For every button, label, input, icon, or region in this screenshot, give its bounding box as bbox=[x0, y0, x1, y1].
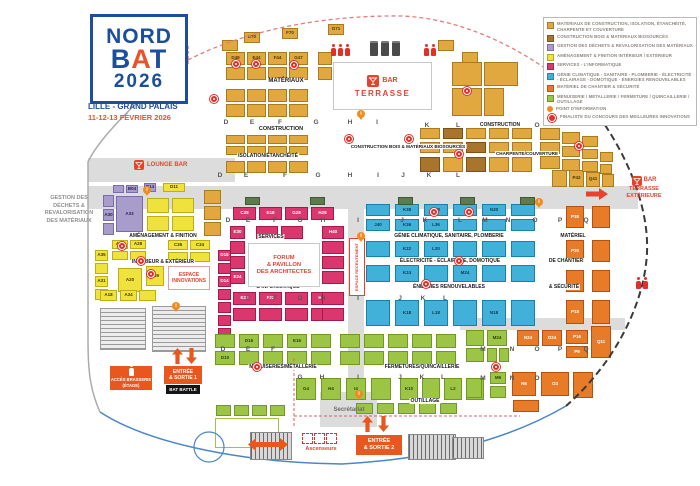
legend-item-label: SERVICES - L'INFORMATIQUE bbox=[557, 62, 621, 68]
booth bbox=[487, 348, 497, 362]
lounge-bar-label: LOUNGE BAR bbox=[134, 160, 187, 170]
booth bbox=[322, 256, 344, 269]
aisle-letter-I: I bbox=[357, 295, 359, 302]
booth bbox=[95, 263, 108, 274]
booth bbox=[420, 157, 440, 172]
aisle-letter-M: M bbox=[480, 346, 485, 353]
arrow-up-icon bbox=[172, 348, 183, 364]
aisle-letter-E: E bbox=[246, 295, 250, 302]
booth bbox=[287, 351, 307, 365]
espace-recrutement: ESPACE RECRUTEMENT bbox=[349, 238, 365, 296]
booth bbox=[466, 330, 484, 346]
info-point-icon: i bbox=[172, 302, 180, 310]
booth-K10: K10 bbox=[400, 378, 418, 400]
booth bbox=[366, 265, 390, 282]
aisle-letter-I: I bbox=[377, 172, 379, 179]
aisle-letter-J: J bbox=[400, 217, 404, 224]
zone-label: MATÉRIEL bbox=[559, 233, 586, 239]
zone-label: SERVICES bbox=[257, 234, 284, 240]
booth bbox=[582, 161, 598, 172]
legend-item: MATÉRIEL DE CHANTIER & SÉCURITÉ bbox=[547, 84, 693, 92]
innovation-finalist-icon bbox=[210, 95, 218, 103]
aisle-letter-F: F bbox=[273, 295, 277, 302]
info-point-icon: i bbox=[357, 232, 365, 240]
legend-item-label: POINT D'INFORMATION bbox=[556, 106, 606, 112]
floorplan-page: NORD BAT 2026 LILLE - GRAND PALAIS 11-12… bbox=[0, 0, 700, 486]
vending-machine-icon bbox=[370, 41, 378, 56]
zone-label: CONSTRUCTION BOIS & MATÉRIAUX BIOSOURCÉS bbox=[350, 144, 467, 149]
bench-icon bbox=[520, 197, 535, 205]
aisle-letter-K: K bbox=[420, 374, 425, 381]
booth-Q41: Q41 bbox=[586, 172, 600, 187]
entree-sortie-1: ENTRÉE & SORTIE 1 bbox=[164, 366, 202, 384]
zone-label: MATÉRIAUX bbox=[267, 78, 304, 84]
arrow-up-icon bbox=[362, 416, 373, 432]
legend-color-swatch bbox=[547, 85, 554, 92]
zone-label: GÉNIE CLIMATIQUE, SANITAIRE, PLOMBERIE bbox=[393, 233, 505, 239]
elevator-icon bbox=[314, 433, 325, 444]
booth-P38: P38 bbox=[566, 206, 584, 228]
booth bbox=[230, 256, 245, 269]
booth bbox=[364, 351, 384, 365]
booth bbox=[443, 128, 463, 139]
booth-K24: K24 bbox=[395, 265, 419, 282]
zone-label: AMÉNAGEMENT & FINITION bbox=[128, 233, 198, 239]
booth-C28: C28 bbox=[233, 207, 256, 220]
booth-E24: E24 bbox=[230, 271, 245, 284]
booth-K36: K36 bbox=[395, 219, 419, 231]
aisle-letter-K: K bbox=[421, 295, 426, 302]
booth bbox=[311, 334, 331, 348]
booth bbox=[511, 219, 535, 231]
booth-F70: F70 bbox=[282, 28, 298, 39]
booth-A18: A18 bbox=[100, 290, 117, 301]
aisle-letter-E: E bbox=[246, 346, 250, 353]
aisle-letter-F: F bbox=[271, 346, 275, 353]
innovation-finalist-icon bbox=[422, 280, 430, 288]
innovation-finalist-icon bbox=[548, 114, 556, 122]
innovation-finalist-icon bbox=[345, 135, 353, 143]
zone-label: & SÉCURITÉ bbox=[548, 284, 580, 290]
innovation-finalist-icon bbox=[575, 142, 583, 150]
booth-P16: P16 bbox=[566, 330, 588, 344]
innovation-finalist-icon bbox=[290, 61, 298, 69]
legend-item-label: MATÉRIEL DE CHANTIER & SÉCURITÉ bbox=[557, 84, 639, 90]
booth-O24: O24 bbox=[542, 330, 562, 346]
booth bbox=[511, 241, 535, 257]
legend-item: GÉNIE CLIMATIQUE - SANITAIRE - PLOMBERIE… bbox=[547, 72, 693, 83]
booth bbox=[247, 67, 266, 80]
booth bbox=[511, 300, 535, 326]
booth bbox=[340, 351, 360, 365]
person-icon bbox=[129, 368, 134, 376]
booth bbox=[482, 265, 506, 282]
aisle-letter-J: J bbox=[398, 374, 402, 381]
aisle-letter-I: I bbox=[357, 217, 359, 224]
bat-battle: BAT BATTLE bbox=[166, 385, 200, 394]
venue-text: LILLE - GRAND PALAIS bbox=[88, 102, 178, 111]
aisle-letter-F: F bbox=[278, 119, 282, 126]
bench-icon bbox=[460, 197, 475, 205]
booth-N30: N30 bbox=[482, 204, 506, 216]
innovation-finalist-icon bbox=[463, 87, 471, 95]
innovation-finalist-icon bbox=[137, 257, 145, 265]
aisle-letter-D: D bbox=[221, 346, 226, 353]
booth bbox=[289, 89, 308, 102]
legend-item-label: FINALISTE DU CONCOURS DES MEILLEURES INN… bbox=[560, 114, 690, 120]
booth-B04: B04 bbox=[126, 185, 138, 193]
elevator-icon bbox=[302, 433, 313, 444]
bench-icon bbox=[398, 197, 413, 205]
booth bbox=[289, 135, 308, 144]
booth bbox=[489, 157, 509, 172]
stairs bbox=[152, 306, 206, 352]
cocktail-icon bbox=[632, 176, 642, 186]
aisle-letter-O: O bbox=[534, 375, 539, 382]
aisle-letter-N: N bbox=[510, 346, 515, 353]
innovation-finalist-icon bbox=[253, 363, 261, 371]
booth-E18: E18 bbox=[259, 207, 282, 220]
arrow-down-icon bbox=[186, 348, 197, 364]
escalator bbox=[408, 434, 456, 460]
legend-item: AMÉNAGEMENT & FINITION INTÉRIEUR / EXTÉR… bbox=[547, 53, 693, 61]
legend-item: SERVICES - L'INFORMATIQUE bbox=[547, 62, 693, 70]
legend-color-swatch bbox=[547, 44, 554, 51]
booth bbox=[420, 128, 440, 139]
booth bbox=[252, 405, 267, 416]
booth bbox=[398, 403, 415, 414]
legend-color-swatch bbox=[547, 63, 554, 70]
secretariat-label: Secrétariat bbox=[320, 407, 378, 413]
booth-A28: A28 bbox=[130, 240, 146, 249]
logo-line2: BAT bbox=[111, 47, 168, 73]
booth bbox=[436, 351, 456, 365]
booth bbox=[204, 206, 221, 220]
booth bbox=[412, 334, 432, 348]
booth bbox=[422, 378, 440, 400]
aisle-letter-K: K bbox=[427, 172, 432, 179]
aisle-letter-G: G bbox=[313, 119, 318, 126]
zone-label: CONSTRUCTION bbox=[479, 122, 521, 128]
booth bbox=[234, 405, 249, 416]
booth-E16: E16 bbox=[287, 334, 307, 348]
zone-label: ISOLATION/ÉTANCHÉITÉ bbox=[237, 153, 299, 159]
booth bbox=[513, 400, 539, 412]
aisle-letter-E: E bbox=[244, 172, 248, 179]
aisle-letter-I: I bbox=[357, 374, 359, 381]
legend-item: MATÉRIAUX DE CONSTRUCTION, ISOLATION, ÉT… bbox=[547, 21, 693, 32]
aisle-letter-H: H bbox=[321, 217, 326, 224]
booth bbox=[366, 241, 390, 257]
booth bbox=[147, 216, 169, 231]
aisle-letter-F: F bbox=[273, 217, 277, 224]
booth-K38: K38 bbox=[395, 204, 419, 216]
booth bbox=[453, 300, 477, 326]
booth-Q11: Q11 bbox=[591, 326, 611, 358]
booth bbox=[340, 334, 360, 348]
zone-label: CHARPENTE/COUVERTURE bbox=[495, 151, 559, 156]
legend-item-label: GESTION DES DÉCHETS & REVALORISATION DES… bbox=[557, 43, 693, 49]
booth-A31: A31 bbox=[95, 276, 108, 287]
booth bbox=[573, 372, 593, 398]
booth bbox=[511, 204, 535, 216]
aisle-letter-L: L bbox=[458, 217, 462, 224]
booth-G4: G4 bbox=[296, 378, 316, 400]
restroom-person-icon bbox=[331, 48, 336, 56]
bench-icon bbox=[245, 197, 260, 205]
info-point-icon: i bbox=[357, 110, 365, 118]
innovation-finalist-icon bbox=[492, 363, 500, 371]
restroom-person-icon bbox=[431, 48, 436, 56]
gestion-dechets-label: GESTION DES DÉCHETS & REVALORISATION DES… bbox=[36, 195, 102, 226]
booth-A20: A20 bbox=[118, 268, 142, 292]
aisle-letter-H: H bbox=[320, 374, 325, 381]
legend-item-label: MENUISERIE / MÉTALLERIE / FERMETURE / QU… bbox=[557, 94, 693, 105]
legend-color-swatch bbox=[547, 35, 554, 42]
booth-A30: A30 bbox=[103, 209, 114, 221]
aisle-letter-M: M bbox=[482, 217, 487, 224]
escalator bbox=[452, 437, 484, 459]
booth bbox=[562, 159, 580, 171]
aisle-letter-L: L bbox=[456, 122, 460, 129]
ascenseurs-label: Ascenseurs bbox=[298, 446, 344, 452]
info-point-icon: i bbox=[535, 198, 543, 206]
aisle-letter-J: J bbox=[398, 295, 402, 302]
booth bbox=[226, 89, 245, 102]
booth bbox=[311, 351, 331, 365]
innovation-finalist-icon bbox=[430, 208, 438, 216]
booth bbox=[600, 152, 613, 162]
booth bbox=[466, 142, 486, 153]
innovation-finalist-icon bbox=[455, 257, 463, 265]
bar-terrasse: BAR TERRASSE bbox=[333, 62, 432, 110]
booth bbox=[371, 378, 391, 400]
booth-P18: P18 bbox=[566, 300, 584, 324]
booth bbox=[482, 241, 506, 257]
booth bbox=[466, 128, 486, 139]
booth bbox=[438, 40, 454, 51]
booth bbox=[270, 405, 285, 416]
info-point-icon: i bbox=[143, 186, 151, 194]
booth-A33: A33 bbox=[116, 196, 143, 232]
zone-label: CONSTRUCTION bbox=[258, 126, 304, 132]
booth-D11: D11 bbox=[163, 183, 185, 192]
restroom-person-icon bbox=[424, 48, 429, 56]
booth-F22: F22 bbox=[259, 292, 282, 305]
aisle-letter-H: H bbox=[348, 119, 353, 126]
cocktail-icon bbox=[134, 160, 144, 170]
info-point-icon bbox=[547, 106, 553, 112]
zone-label: FERMETURES/QUINCAILLERIE bbox=[384, 364, 461, 370]
booth bbox=[268, 104, 287, 117]
booth bbox=[582, 136, 598, 147]
booth bbox=[453, 241, 477, 257]
booth bbox=[226, 104, 245, 117]
booth bbox=[552, 170, 567, 187]
forum-architectes: FORUM & PAVILLON DES ARCHITECTES bbox=[248, 243, 320, 287]
arrow-right-icon bbox=[586, 188, 608, 200]
booth bbox=[484, 88, 504, 116]
booth bbox=[600, 164, 612, 174]
booth bbox=[592, 270, 610, 292]
booth bbox=[490, 386, 506, 398]
booth bbox=[113, 185, 124, 193]
booth bbox=[285, 308, 308, 321]
aisle-letter-Q: Q bbox=[583, 217, 588, 224]
booth bbox=[366, 204, 390, 216]
booth bbox=[484, 62, 518, 86]
aisle-letter-M: M bbox=[480, 375, 485, 382]
aisle-letter-N: N bbox=[506, 217, 511, 224]
arrow-left-right-icon bbox=[248, 438, 288, 451]
info-point-icon: i bbox=[355, 390, 363, 398]
innovation-finalist-icon bbox=[252, 60, 260, 68]
aisle-letter-N: N bbox=[510, 375, 515, 382]
aisle-letter-D: D bbox=[226, 217, 231, 224]
booth bbox=[216, 405, 231, 416]
booth bbox=[388, 334, 408, 348]
legend-color-swatch bbox=[547, 22, 554, 29]
legend-item: FINALISTE DU CONCOURS DES MEILLEURES INN… bbox=[547, 114, 693, 122]
elevator-icon bbox=[326, 433, 337, 444]
booth-A34: A34 bbox=[120, 290, 137, 301]
booth-E30: E30 bbox=[230, 226, 245, 239]
restroom-person-icon bbox=[636, 281, 641, 289]
booth bbox=[268, 135, 287, 144]
booth bbox=[443, 157, 463, 172]
zone-label: ÉLECTRICITÉ - ÉCLAIRAGE, DOMOTIQUE bbox=[399, 258, 501, 264]
bench-icon bbox=[310, 197, 325, 205]
booth bbox=[222, 40, 238, 51]
aisle-letter-Q: Q bbox=[583, 346, 588, 353]
booth bbox=[440, 403, 457, 414]
innovation-finalist-icon bbox=[465, 208, 473, 216]
legend-item: GESTION DES DÉCHETS & REVALORISATION DES… bbox=[547, 43, 693, 51]
booth-M24: M24 bbox=[487, 330, 507, 346]
booth bbox=[289, 104, 308, 117]
booth bbox=[204, 190, 221, 204]
bar-terrasse-exterieure: BAR TERRASSE EXTÉRIEURE bbox=[612, 176, 676, 200]
booth bbox=[226, 135, 245, 144]
booth-E22: E22 bbox=[233, 292, 256, 305]
acces-brasserie: ACCÈS BRASSERIE (ÉTAGE) bbox=[110, 366, 152, 390]
booth-N6: N6 bbox=[512, 372, 536, 396]
booth bbox=[592, 206, 610, 228]
booth bbox=[218, 315, 231, 326]
legend-item-label: GÉNIE CLIMATIQUE - SANITAIRE - PLOMBERIE… bbox=[557, 72, 693, 83]
restroom-person-icon bbox=[345, 48, 350, 56]
aisle-letter-P: P bbox=[558, 217, 562, 224]
booth-H40: H40 bbox=[322, 226, 344, 239]
booth bbox=[172, 198, 194, 213]
legend-color-swatch bbox=[547, 95, 554, 102]
booth-O3: O3 bbox=[541, 372, 569, 396]
legend-item: CONSTRUCTION BOIS & MATÉRIAUX BIOSOURCÉS bbox=[547, 34, 693, 42]
booth bbox=[419, 403, 436, 414]
booth bbox=[247, 161, 266, 173]
restroom-person-icon bbox=[643, 281, 648, 289]
booth-L30: L30 bbox=[424, 241, 448, 257]
booth bbox=[322, 308, 344, 321]
booth bbox=[204, 222, 221, 236]
booth bbox=[466, 157, 486, 172]
booth bbox=[226, 67, 245, 80]
booth bbox=[452, 62, 482, 86]
booth bbox=[512, 128, 532, 139]
booth-F44: F44 bbox=[268, 52, 287, 65]
booth bbox=[377, 403, 394, 414]
booth bbox=[366, 300, 390, 326]
booth bbox=[436, 334, 456, 348]
booth bbox=[592, 300, 610, 324]
booth bbox=[112, 251, 128, 260]
aisle-letter-K: K bbox=[425, 122, 430, 129]
legend-item: MENUISERIE / MÉTALLERIE / FERMETURE / QU… bbox=[547, 94, 693, 105]
aisle-letter-O: O bbox=[532, 217, 537, 224]
booth-N24: N24 bbox=[517, 330, 539, 346]
booth bbox=[540, 128, 560, 140]
legend-item-label: AMÉNAGEMENT & FINITION INTÉRIEUR / EXTÉR… bbox=[557, 53, 672, 59]
aisle-letter-L: L bbox=[441, 374, 445, 381]
booth bbox=[103, 195, 114, 207]
logo-year: 2026 bbox=[114, 73, 164, 91]
booth bbox=[364, 334, 384, 348]
booth bbox=[233, 308, 256, 321]
aisle-letter-F: F bbox=[283, 172, 287, 179]
booth-C34: C34 bbox=[190, 240, 210, 250]
aisle-letter-J: J bbox=[401, 172, 405, 179]
booth-A35: A35 bbox=[95, 250, 108, 261]
legend-color-swatch bbox=[547, 73, 554, 80]
booth bbox=[247, 135, 266, 144]
legend-item: POINT D'INFORMATION bbox=[547, 106, 693, 112]
booth bbox=[499, 348, 509, 362]
vending-machine-icon bbox=[381, 41, 389, 56]
booth bbox=[230, 241, 245, 254]
booth bbox=[147, 198, 169, 213]
booth-M24: M24 bbox=[453, 265, 477, 282]
booth-K18: K18 bbox=[395, 300, 419, 326]
booth-L18: L18 bbox=[424, 300, 448, 326]
aisle-letter-H: H bbox=[321, 295, 326, 302]
aisle-letter-D: D bbox=[224, 119, 229, 126]
legend-item-label: CONSTRUCTION BOIS & MATÉRIAUX BIOSOURCÉS bbox=[557, 34, 668, 40]
booth bbox=[103, 223, 114, 235]
aisle-letter-K: K bbox=[423, 217, 428, 224]
aisle-letter-I: I bbox=[376, 119, 378, 126]
innovation-finalist-icon bbox=[232, 60, 240, 68]
aisle-letter-E: E bbox=[246, 217, 250, 224]
vending-machine-icon bbox=[392, 41, 400, 56]
aisle-letter-G: G bbox=[315, 172, 320, 179]
aisle-letter-O: O bbox=[534, 346, 539, 353]
booth bbox=[512, 157, 532, 172]
booth-C36: C36 bbox=[168, 240, 188, 250]
aisle-letter-G: G bbox=[297, 217, 302, 224]
legend-item-label: MATÉRIAUX DE CONSTRUCTION, ISOLATION, ÉT… bbox=[557, 21, 693, 32]
booth bbox=[318, 52, 332, 65]
booth-N18: N18 bbox=[482, 300, 506, 326]
booth bbox=[511, 265, 535, 282]
legend-color-swatch bbox=[547, 54, 554, 61]
booth bbox=[412, 351, 432, 365]
booth bbox=[453, 219, 477, 231]
zone-label: DE CHANTIER bbox=[548, 258, 584, 264]
booth bbox=[259, 308, 282, 321]
booth bbox=[247, 104, 266, 117]
booth-M6: M6 bbox=[490, 372, 506, 384]
booth-K22: K22 bbox=[395, 241, 419, 257]
